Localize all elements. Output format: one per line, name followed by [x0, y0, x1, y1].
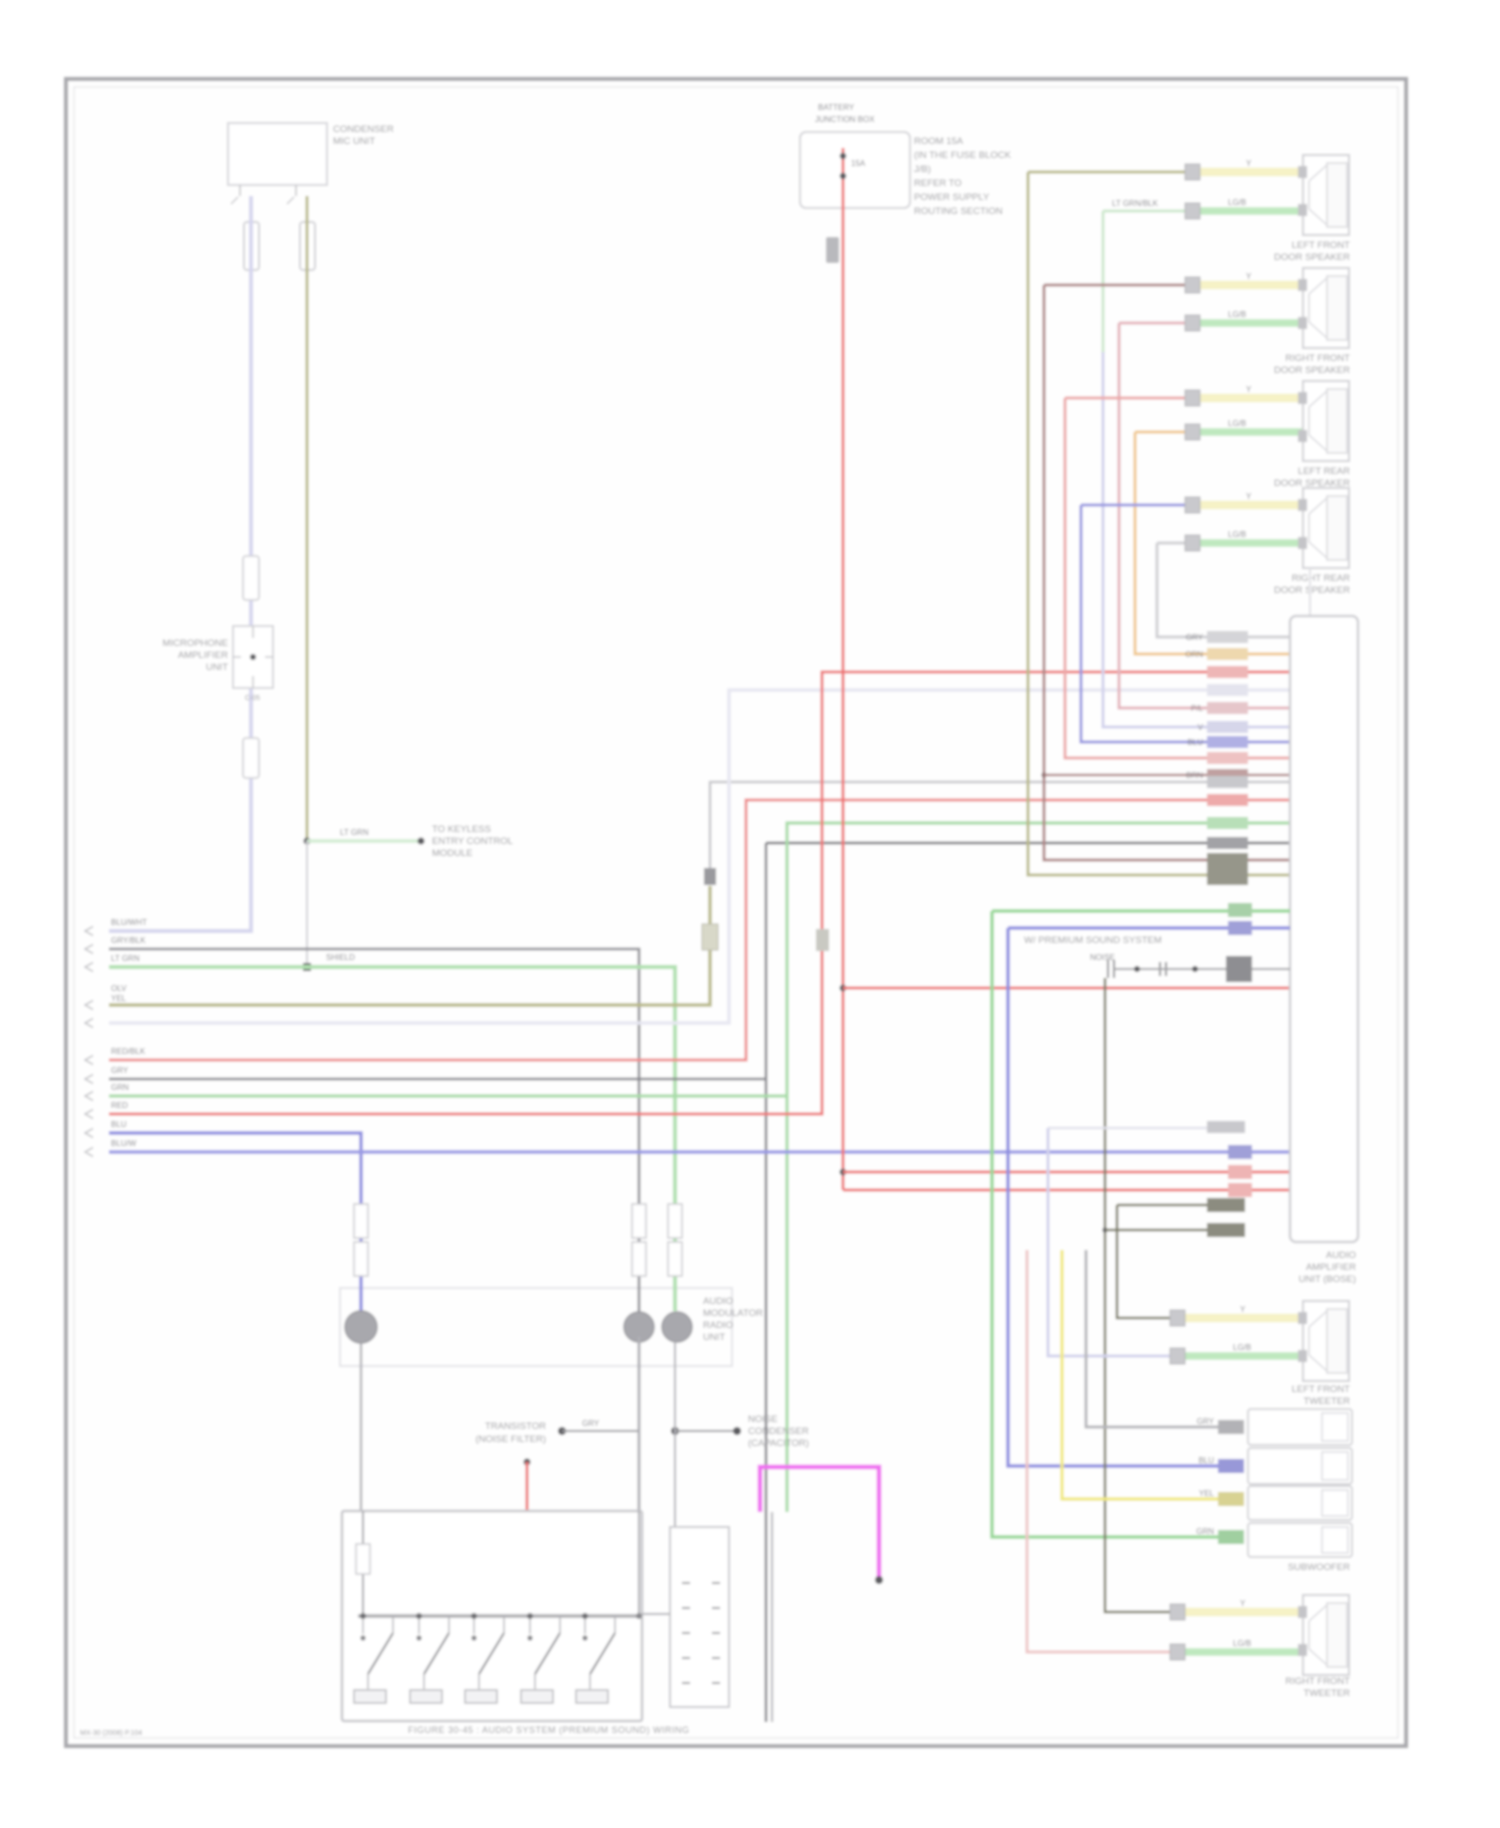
svg-text:CONDENSER: CONDENSER — [333, 124, 394, 135]
svg-text:BLU: BLU — [1198, 1456, 1214, 1465]
svg-text:(NOISE FILTER): (NOISE FILTER) — [475, 1434, 546, 1445]
svg-text:ROUTING SECTION: ROUTING SECTION — [914, 206, 1003, 217]
svg-text:LEFT REAR: LEFT REAR — [1298, 466, 1350, 477]
svg-text:TWEETER: TWEETER — [1304, 1396, 1351, 1407]
svg-text:RED: RED — [111, 1101, 128, 1110]
svg-text:15A: 15A — [851, 159, 866, 168]
svg-text:LEFT FRONT: LEFT FRONT — [1292, 240, 1351, 251]
svg-text:W/ PREMIUM SOUND SYSTEM: W/ PREMIUM SOUND SYSTEM — [1024, 935, 1162, 946]
svg-text:BLU/WHT: BLU/WHT — [111, 918, 147, 927]
svg-text:RIGHT FRONT: RIGHT FRONT — [1285, 353, 1350, 364]
svg-text:POWER SUPPLY: POWER SUPPLY — [914, 192, 990, 203]
svg-text:GRY/BLK: GRY/BLK — [111, 936, 146, 945]
svg-text:FIGURE 30-45 : AUDIO SYSTEM (P: FIGURE 30-45 : AUDIO SYSTEM (PREMIUM SOU… — [408, 1725, 690, 1735]
svg-text:RED/BLK: RED/BLK — [111, 1047, 146, 1056]
svg-text:MODULE: MODULE — [432, 848, 473, 859]
svg-text:DOOR SPEAKER: DOOR SPEAKER — [1274, 365, 1350, 376]
svg-text:Y: Y — [1246, 159, 1252, 168]
svg-text:LT GRN: LT GRN — [340, 828, 369, 837]
svg-text:Y: Y — [1246, 385, 1252, 394]
svg-text:BRN: BRN — [1186, 771, 1203, 780]
svg-text:GRY: GRY — [1186, 633, 1204, 642]
svg-text:GRN: GRN — [111, 1083, 129, 1092]
svg-text:TWEETER: TWEETER — [1304, 1688, 1351, 1699]
svg-text:REFER TO: REFER TO — [914, 178, 962, 189]
svg-text:LT GRN: LT GRN — [111, 954, 140, 963]
svg-text:UNIT (BOSE): UNIT (BOSE) — [1299, 1274, 1356, 1285]
svg-text:J/B): J/B) — [914, 164, 931, 175]
svg-text:LG/B: LG/B — [1233, 1343, 1251, 1352]
svg-text:LG/B: LG/B — [1228, 530, 1246, 539]
svg-text:LEFT FRONT: LEFT FRONT — [1292, 1384, 1351, 1395]
svg-text:GRY: GRY — [1197, 1417, 1215, 1426]
svg-text:TRANSISTOR: TRANSISTOR — [485, 1421, 546, 1432]
svg-text:LG/B: LG/B — [1228, 198, 1246, 207]
svg-text:YEL: YEL — [1199, 1489, 1215, 1498]
svg-text:DOOR SPEAKER: DOOR SPEAKER — [1274, 252, 1350, 263]
svg-text:ROOM 15A: ROOM 15A — [914, 136, 964, 147]
svg-text:Y: Y — [1246, 272, 1252, 281]
svg-text:ORN: ORN — [1185, 650, 1203, 659]
svg-text:DOOR SPEAKER: DOOR SPEAKER — [1274, 585, 1350, 596]
svg-text:V: V — [1198, 723, 1204, 732]
svg-text:SHIELD: SHIELD — [326, 953, 355, 962]
svg-text:Y: Y — [1240, 1599, 1246, 1608]
svg-text:LG/B: LG/B — [1233, 1639, 1251, 1648]
svg-text:BLU/W: BLU/W — [111, 1139, 137, 1148]
svg-text:(CAPACITOR): (CAPACITOR) — [748, 1438, 809, 1449]
svg-text:AUDIO: AUDIO — [703, 1296, 733, 1307]
svg-text:MODULATOR: MODULATOR — [703, 1308, 763, 1319]
svg-text:JUNCTION BOX: JUNCTION BOX — [815, 115, 875, 124]
svg-text:GRY: GRY — [111, 1066, 129, 1075]
svg-text:NOISE: NOISE — [1090, 953, 1115, 962]
svg-text:GRY: GRY — [582, 1419, 600, 1428]
svg-text:ENTRY CONTROL: ENTRY CONTROL — [432, 836, 513, 847]
svg-text:Y: Y — [1246, 492, 1252, 501]
svg-text:OLV: OLV — [111, 984, 127, 993]
svg-text:AUDIO: AUDIO — [1326, 1250, 1356, 1261]
svg-text:AMPLIFIER: AMPLIFIER — [178, 650, 228, 661]
svg-text:C-05: C-05 — [245, 695, 260, 702]
svg-text:P/L: P/L — [1191, 704, 1204, 713]
svg-text:AMPLIFIER: AMPLIFIER — [1306, 1262, 1356, 1273]
svg-text:YEL: YEL — [111, 994, 127, 1003]
svg-text:LG/B: LG/B — [1228, 310, 1246, 319]
svg-text:RADIO: RADIO — [703, 1320, 733, 1331]
svg-text:MX-30 (2008) P.104: MX-30 (2008) P.104 — [80, 1730, 142, 1737]
svg-text:RIGHT FRONT: RIGHT FRONT — [1285, 1676, 1350, 1687]
svg-text:TO KEYLESS: TO KEYLESS — [432, 824, 491, 835]
svg-text:UNIT: UNIT — [703, 1332, 725, 1343]
svg-text:UNIT: UNIT — [206, 662, 228, 673]
svg-text:SUBWOOFER: SUBWOOFER — [1288, 1562, 1350, 1573]
svg-text:BATTERY: BATTERY — [818, 103, 855, 112]
svg-text:RIGHT REAR: RIGHT REAR — [1292, 573, 1351, 584]
svg-text:LG/B: LG/B — [1228, 419, 1246, 428]
svg-text:MICROPHONE: MICROPHONE — [163, 638, 228, 649]
svg-text:LT GRN/BLK: LT GRN/BLK — [1112, 199, 1159, 208]
svg-text:NOISE: NOISE — [748, 1414, 778, 1425]
svg-text:CONDENSER: CONDENSER — [748, 1426, 809, 1437]
svg-text:BLU: BLU — [1187, 738, 1203, 747]
svg-text:BLU: BLU — [111, 1120, 127, 1129]
svg-text:MIC UNIT: MIC UNIT — [333, 136, 375, 147]
svg-text:Y: Y — [1240, 1305, 1246, 1314]
svg-text:GRN: GRN — [1196, 1527, 1214, 1536]
svg-text:(IN THE FUSE BLOCK: (IN THE FUSE BLOCK — [914, 150, 1012, 161]
